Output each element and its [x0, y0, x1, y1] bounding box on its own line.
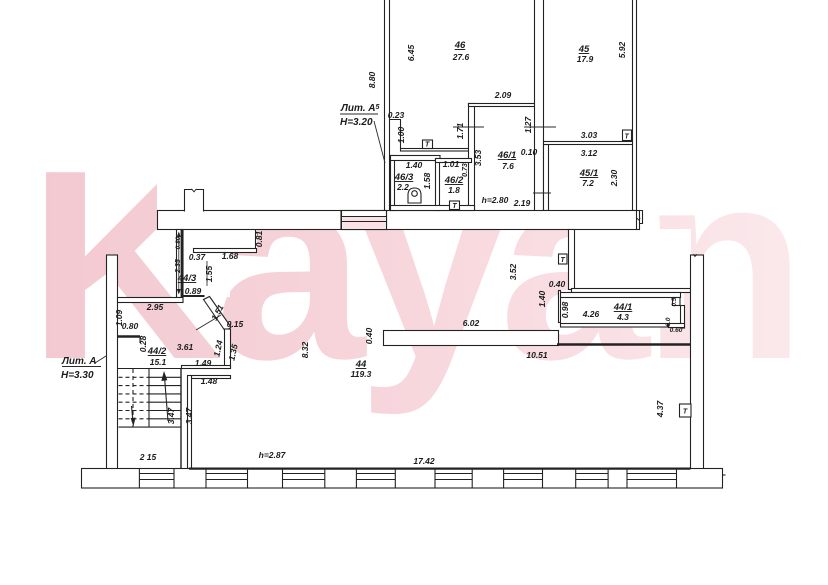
- svg-text:1.00: 1.00: [396, 126, 406, 143]
- svg-text:1.40: 1.40: [537, 290, 547, 307]
- svg-text:h=2.87: h=2.87: [259, 450, 287, 460]
- svg-text:10.51: 10.51: [526, 350, 548, 360]
- svg-text:T: T: [452, 203, 457, 210]
- svg-text:44/3: 44/3: [177, 273, 197, 284]
- svg-text:2.35: 2.35: [175, 259, 182, 274]
- svg-text:Лит. А: Лит. А: [61, 356, 97, 367]
- svg-text:0.60: 0.60: [670, 327, 683, 334]
- svg-text:0.73: 0.73: [462, 163, 469, 177]
- svg-text:0.40: 0.40: [364, 327, 374, 344]
- svg-text:7.6: 7.6: [502, 161, 514, 171]
- svg-text:3.52: 3.52: [508, 263, 518, 280]
- svg-text:3.12: 3.12: [581, 148, 598, 158]
- svg-text:T: T: [625, 134, 630, 141]
- svg-text:0.40: 0.40: [549, 279, 566, 289]
- svg-text:119.3: 119.3: [351, 369, 372, 379]
- svg-text:0.81: 0.81: [254, 230, 264, 247]
- svg-text:4.3: 4.3: [616, 312, 629, 322]
- svg-text:0.98: 0.98: [560, 301, 570, 318]
- svg-text:8.80: 8.80: [367, 71, 377, 88]
- svg-text:17.9: 17.9: [577, 54, 594, 64]
- svg-text:0.28: 0.28: [138, 335, 148, 352]
- svg-text:0.23: 0.23: [388, 110, 405, 120]
- svg-text:2.95: 2.95: [146, 302, 164, 312]
- svg-text:2.2: 2.2: [396, 182, 409, 192]
- svg-text:1.27: 1.27: [523, 115, 533, 133]
- svg-text:15.1: 15.1: [150, 357, 167, 367]
- svg-text:1.68: 1.68: [222, 251, 239, 261]
- svg-text:3.53: 3.53: [473, 149, 483, 166]
- svg-text:T: T: [683, 409, 688, 416]
- svg-text:Н=3.20: Н=3.20: [340, 117, 373, 128]
- svg-text:6.45: 6.45: [406, 44, 416, 61]
- svg-text:T: T: [425, 142, 430, 149]
- svg-text:h=2.80: h=2.80: [482, 195, 509, 205]
- svg-text:2.19: 2.19: [513, 198, 531, 208]
- svg-text:4.37: 4.37: [655, 399, 665, 418]
- svg-text:6.02: 6.02: [463, 318, 480, 328]
- svg-text:3.47: 3.47: [166, 406, 176, 424]
- svg-text:Лит. А5: Лит. А5: [340, 103, 380, 114]
- svg-text:3.47: 3.47: [184, 406, 194, 424]
- svg-text:46: 46: [454, 40, 466, 51]
- svg-text:27.6: 27.6: [452, 52, 470, 62]
- svg-text:1.48: 1.48: [201, 376, 218, 386]
- svg-text:T: T: [561, 257, 566, 264]
- svg-text:2.09: 2.09: [494, 90, 512, 100]
- svg-text:46/1: 46/1: [497, 150, 517, 161]
- svg-text:3.61: 3.61: [177, 342, 194, 352]
- svg-text:4.26: 4.26: [582, 309, 600, 319]
- svg-text:0.15: 0.15: [227, 319, 244, 329]
- svg-text:0.5: 0.5: [671, 297, 678, 306]
- svg-text:8.32: 8.32: [300, 341, 310, 358]
- svg-text:7.2: 7.2: [582, 178, 594, 188]
- svg-text:1.58: 1.58: [422, 172, 432, 189]
- svg-text:3.0: 3.0: [665, 317, 672, 326]
- svg-text:0.37: 0.37: [189, 252, 207, 262]
- svg-text:1.40: 1.40: [406, 160, 423, 170]
- svg-text:2 15: 2 15: [139, 452, 157, 462]
- svg-text:5.92: 5.92: [617, 41, 627, 58]
- svg-text:0.10: 0.10: [521, 147, 538, 157]
- svg-text:1.01: 1.01: [443, 159, 460, 169]
- svg-text:Н=3.30: Н=3.30: [61, 370, 94, 381]
- svg-text:1.71: 1.71: [455, 122, 465, 139]
- svg-text:3.03: 3.03: [581, 130, 598, 140]
- svg-text:44/2: 44/2: [147, 346, 167, 357]
- svg-text:1.49: 1.49: [195, 358, 212, 368]
- svg-text:17.42: 17.42: [413, 456, 435, 466]
- svg-text:0.89: 0.89: [185, 286, 202, 296]
- svg-text:0.80: 0.80: [122, 321, 139, 331]
- svg-text:0.80: 0.80: [175, 236, 182, 249]
- svg-text:1.55: 1.55: [204, 265, 214, 282]
- svg-text:1.8: 1.8: [448, 185, 460, 195]
- svg-text:2.30: 2.30: [609, 169, 619, 187]
